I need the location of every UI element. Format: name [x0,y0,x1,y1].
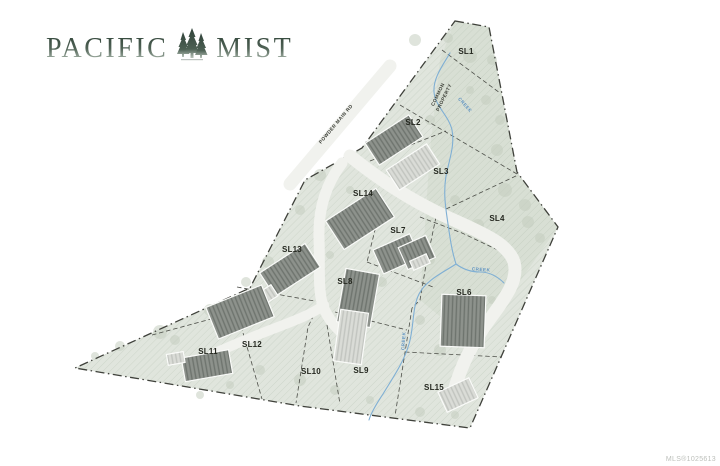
lot-label-sl12: SL12 [242,340,262,349]
lot-label-sl10: SL10 [301,367,321,376]
building-sl6 [440,294,486,348]
lot-label-sl15: SL15 [424,383,444,392]
lot-label-sl11: SL11 [198,347,218,356]
pacific-mist-site-plan: PACIFIC MIST [0,0,720,466]
lot-label-sl2: SL2 [405,118,421,127]
mls-number: MLS®1025613 [666,456,716,463]
lot-label-sl4: SL4 [489,214,505,223]
lot-label-sl6: SL6 [456,288,472,297]
lot-label-sl8: SL8 [337,277,353,286]
site-plan-map: POWDER MAIN RD COMMON PROPERTY CREEK CRE… [0,0,720,466]
lot-label-sl14: SL14 [353,189,373,198]
lot-label-sl7: SL7 [390,226,406,235]
lot-label-sl13: SL13 [282,245,302,254]
lot-label-sl1: SL1 [458,47,474,56]
lot-label-sl9: SL9 [353,366,369,375]
lot-label-sl3: SL3 [433,167,449,176]
